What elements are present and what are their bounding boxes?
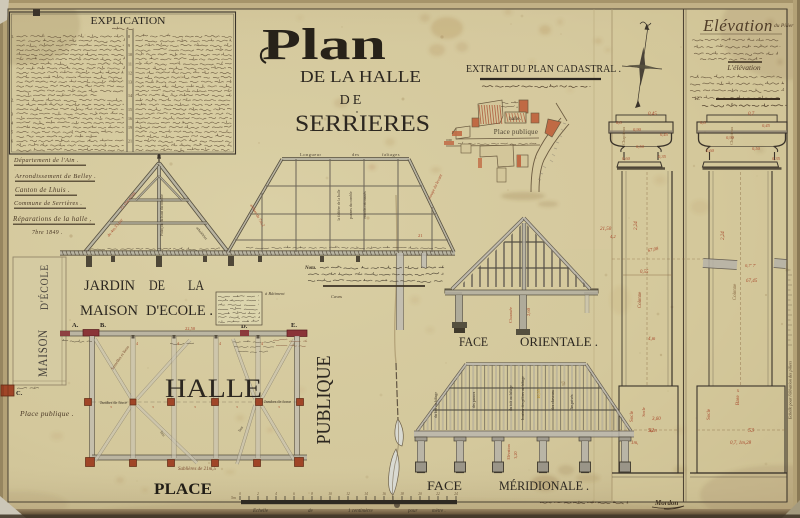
svg-text:LA: LA <box>188 278 204 294</box>
svg-text:Echelle: Echelle <box>252 509 269 514</box>
svg-text:0,7: 0,7 <box>748 112 755 117</box>
svg-text:Canton de Lhuis .: Canton de Lhuis . <box>15 187 70 194</box>
svg-text:Caves: Caves <box>331 294 342 299</box>
svg-text:du toit au faîtage: du toit au faîtage <box>509 385 513 411</box>
svg-text:3: 3 <box>236 405 238 409</box>
svg-text:entraits retroussés: entraits retroussés <box>363 191 367 219</box>
svg-text:Base: Base <box>736 395 741 406</box>
svg-text:12: 12 <box>128 70 132 75</box>
svg-text:Chapiteau: Chapiteau <box>621 126 626 145</box>
svg-text:21,50: 21,50 <box>600 227 612 232</box>
svg-text:9: 9 <box>128 43 130 48</box>
svg-text:à Bâtiment: à Bâtiment <box>265 291 285 296</box>
svg-text:A.: A. <box>72 322 79 329</box>
svg-text:Colonne: Colonne <box>638 292 643 308</box>
svg-text:C.: C. <box>16 390 23 397</box>
svg-text:24: 24 <box>454 492 458 496</box>
svg-text:2,24: 2,24 <box>634 221 639 230</box>
svg-text:Chapiteau: Chapiteau <box>729 126 734 145</box>
svg-text:L'élévation: L'élévation <box>726 63 761 72</box>
svg-text:MÉRIDIONALE .: MÉRIDIONALE . <box>499 479 589 493</box>
svg-text:Plan: Plan <box>262 20 386 69</box>
svg-text:1m,: 1m, <box>631 441 638 446</box>
svg-text:7bre 1849 .: 7bre 1849 . <box>32 229 63 236</box>
svg-text:1 centimètre: 1 centimètre <box>348 509 373 514</box>
svg-text:14: 14 <box>128 93 132 98</box>
svg-text:0,55: 0,55 <box>640 270 649 275</box>
svg-text:DE: DE <box>340 93 365 108</box>
svg-text:11: 11 <box>128 61 132 66</box>
svg-text:D'ECOLE .: D'ECOLE . <box>146 303 213 319</box>
svg-text:pannes du comble: pannes du comble <box>349 191 353 219</box>
svg-text:Place publique .: Place publique . <box>19 409 74 418</box>
svg-text:Arrondissement de Belley .: Arrondissement de Belley . <box>14 173 96 180</box>
svg-text:8: 8 <box>128 34 130 39</box>
svg-text:Nota.: Nota. <box>304 266 316 271</box>
svg-text:2: 2 <box>257 492 259 496</box>
svg-text:1.: 1. <box>11 34 14 39</box>
svg-text:pour: pour <box>407 509 418 514</box>
svg-text:DE LA HALLE: DE LA HALLE <box>300 67 421 86</box>
svg-text:Longueur: Longueur <box>300 152 322 157</box>
svg-text:Place publique: Place publique <box>494 129 538 136</box>
svg-text:Poinçon du haut du comble: Poinçon du haut du comble <box>160 194 164 236</box>
svg-text:MAISON: MAISON <box>36 329 50 377</box>
svg-text:des: des <box>352 152 360 157</box>
svg-text:halle.: halle. <box>509 116 522 122</box>
svg-text:D'ÉCOLE: D'ÉCOLE <box>37 264 51 310</box>
svg-text:JARDIN: JARDIN <box>84 278 135 294</box>
svg-text:EXPLICATION: EXPLICATION <box>91 15 166 27</box>
svg-text:16: 16 <box>382 492 386 496</box>
svg-text:Socle: Socle <box>641 407 646 416</box>
svg-text:22: 22 <box>436 492 440 496</box>
svg-text:Echelle pour l'élévation des p: Echelle pour l'élévation des piliers <box>788 360 793 420</box>
svg-text:5: 5 <box>11 130 13 135</box>
svg-text:13: 13 <box>128 80 132 85</box>
svg-text:du Pilier: du Pilier <box>774 23 794 29</box>
svg-text:19: 19 <box>128 125 132 130</box>
svg-text:0: 0 <box>239 492 241 496</box>
svg-text:Jambes de force: Jambes de force <box>264 399 291 404</box>
svg-text:4: 4 <box>219 341 221 346</box>
svg-text:des chevrons: des chevrons <box>551 390 555 410</box>
svg-text:67,45: 67,45 <box>746 279 758 284</box>
svg-text:E.: E. <box>291 322 297 329</box>
svg-text:20: 20 <box>418 492 422 496</box>
svg-text:10: 10 <box>328 492 332 496</box>
svg-text:53: 53 <box>748 428 754 434</box>
svg-text:Colonne: Colonne <box>733 284 738 300</box>
svg-text:Sablières de 21m,5: Sablières de 21m,5 <box>178 467 217 472</box>
svg-text:0,7, 1m,28: 0,7, 1m,28 <box>730 441 752 446</box>
svg-text:DE: DE <box>149 278 165 294</box>
svg-text:SERRIERES: SERRIERES <box>295 111 430 136</box>
svg-text:5m: 5m <box>231 495 236 500</box>
svg-text:2,24: 2,24 <box>721 231 726 240</box>
svg-text:15: 15 <box>128 107 132 112</box>
svg-text:4: 4 <box>275 492 277 496</box>
svg-text:Chaussée: Chaussée <box>508 307 513 323</box>
svg-text:la faîtière de la halle: la faîtière de la halle <box>337 189 341 220</box>
svg-text:3,60: 3,60 <box>652 417 661 422</box>
svg-text:Réparations de la halle .: Réparations de la halle . <box>12 215 92 223</box>
svg-text:Socle: Socle <box>630 410 635 422</box>
svg-text:4: 4 <box>261 341 263 346</box>
svg-text:EXTRAIT DU PLAN CADASTRAL .: EXTRAIT DU PLAN CADASTRAL . <box>466 63 621 75</box>
svg-text:10: 10 <box>128 52 132 57</box>
svg-text:Département de l'Ain .: Département de l'Ain . <box>13 157 79 164</box>
svg-text:ORIENTALE .: ORIENTALE . <box>520 335 598 349</box>
svg-text:du fort au faîtage: du fort au faîtage <box>434 392 438 418</box>
svg-text:mètre .: mètre . <box>432 509 446 514</box>
svg-text:PLACE: PLACE <box>154 481 212 498</box>
svg-text:3: 3 <box>11 111 13 116</box>
svg-text:2.: 2. <box>11 98 14 103</box>
svg-text:B.: B. <box>100 322 106 329</box>
svg-text:4: 4 <box>177 341 179 346</box>
svg-text:21: 21 <box>128 139 132 144</box>
svg-text:6: 6 <box>293 492 295 496</box>
svg-text:Socle: Socle <box>707 408 712 420</box>
svg-text:14: 14 <box>364 492 368 496</box>
svg-text:Jambes de force: Jambes de force <box>100 400 127 405</box>
svg-text:16: 16 <box>128 116 132 121</box>
svg-text:MAISON: MAISON <box>80 303 138 319</box>
svg-text:21: 21 <box>418 233 423 238</box>
svg-text:3: 3 <box>110 405 112 409</box>
svg-text:de: de <box>308 509 314 514</box>
svg-text:18: 18 <box>400 492 404 496</box>
svg-text:Commune de Serrières .: Commune de Serrières . <box>14 200 82 207</box>
svg-text:6: 6 <box>11 139 13 144</box>
svg-text:Mordon: Mordon <box>654 499 678 507</box>
svg-text:PUBLIQUE: PUBLIQUE <box>314 356 335 445</box>
svg-text:12: 12 <box>346 492 350 496</box>
svg-text:3: 3 <box>152 405 154 409</box>
svg-text:des pannes: des pannes <box>472 391 476 408</box>
svg-text:4: 4 <box>136 341 138 346</box>
svg-text:hauteur des piliers au faî: hauteur des piliers au faîtage <box>521 376 525 420</box>
svg-text:12.: 12. <box>694 97 700 102</box>
svg-text:HALLE: HALLE <box>165 374 262 403</box>
svg-text:faîtages: faîtages <box>382 152 400 157</box>
svg-text:FACE: FACE <box>427 479 462 493</box>
svg-text:Elévation: Elévation <box>506 444 511 459</box>
svg-text:8: 8 <box>311 492 313 496</box>
svg-text:3: 3 <box>278 405 280 409</box>
svg-text:0,45: 0,45 <box>648 112 657 117</box>
svg-text:3: 3 <box>194 405 196 409</box>
svg-text:4,m: 4,m <box>648 337 656 342</box>
svg-text:Elévation: Elévation <box>702 16 773 35</box>
svg-text:FACE: FACE <box>459 335 488 349</box>
